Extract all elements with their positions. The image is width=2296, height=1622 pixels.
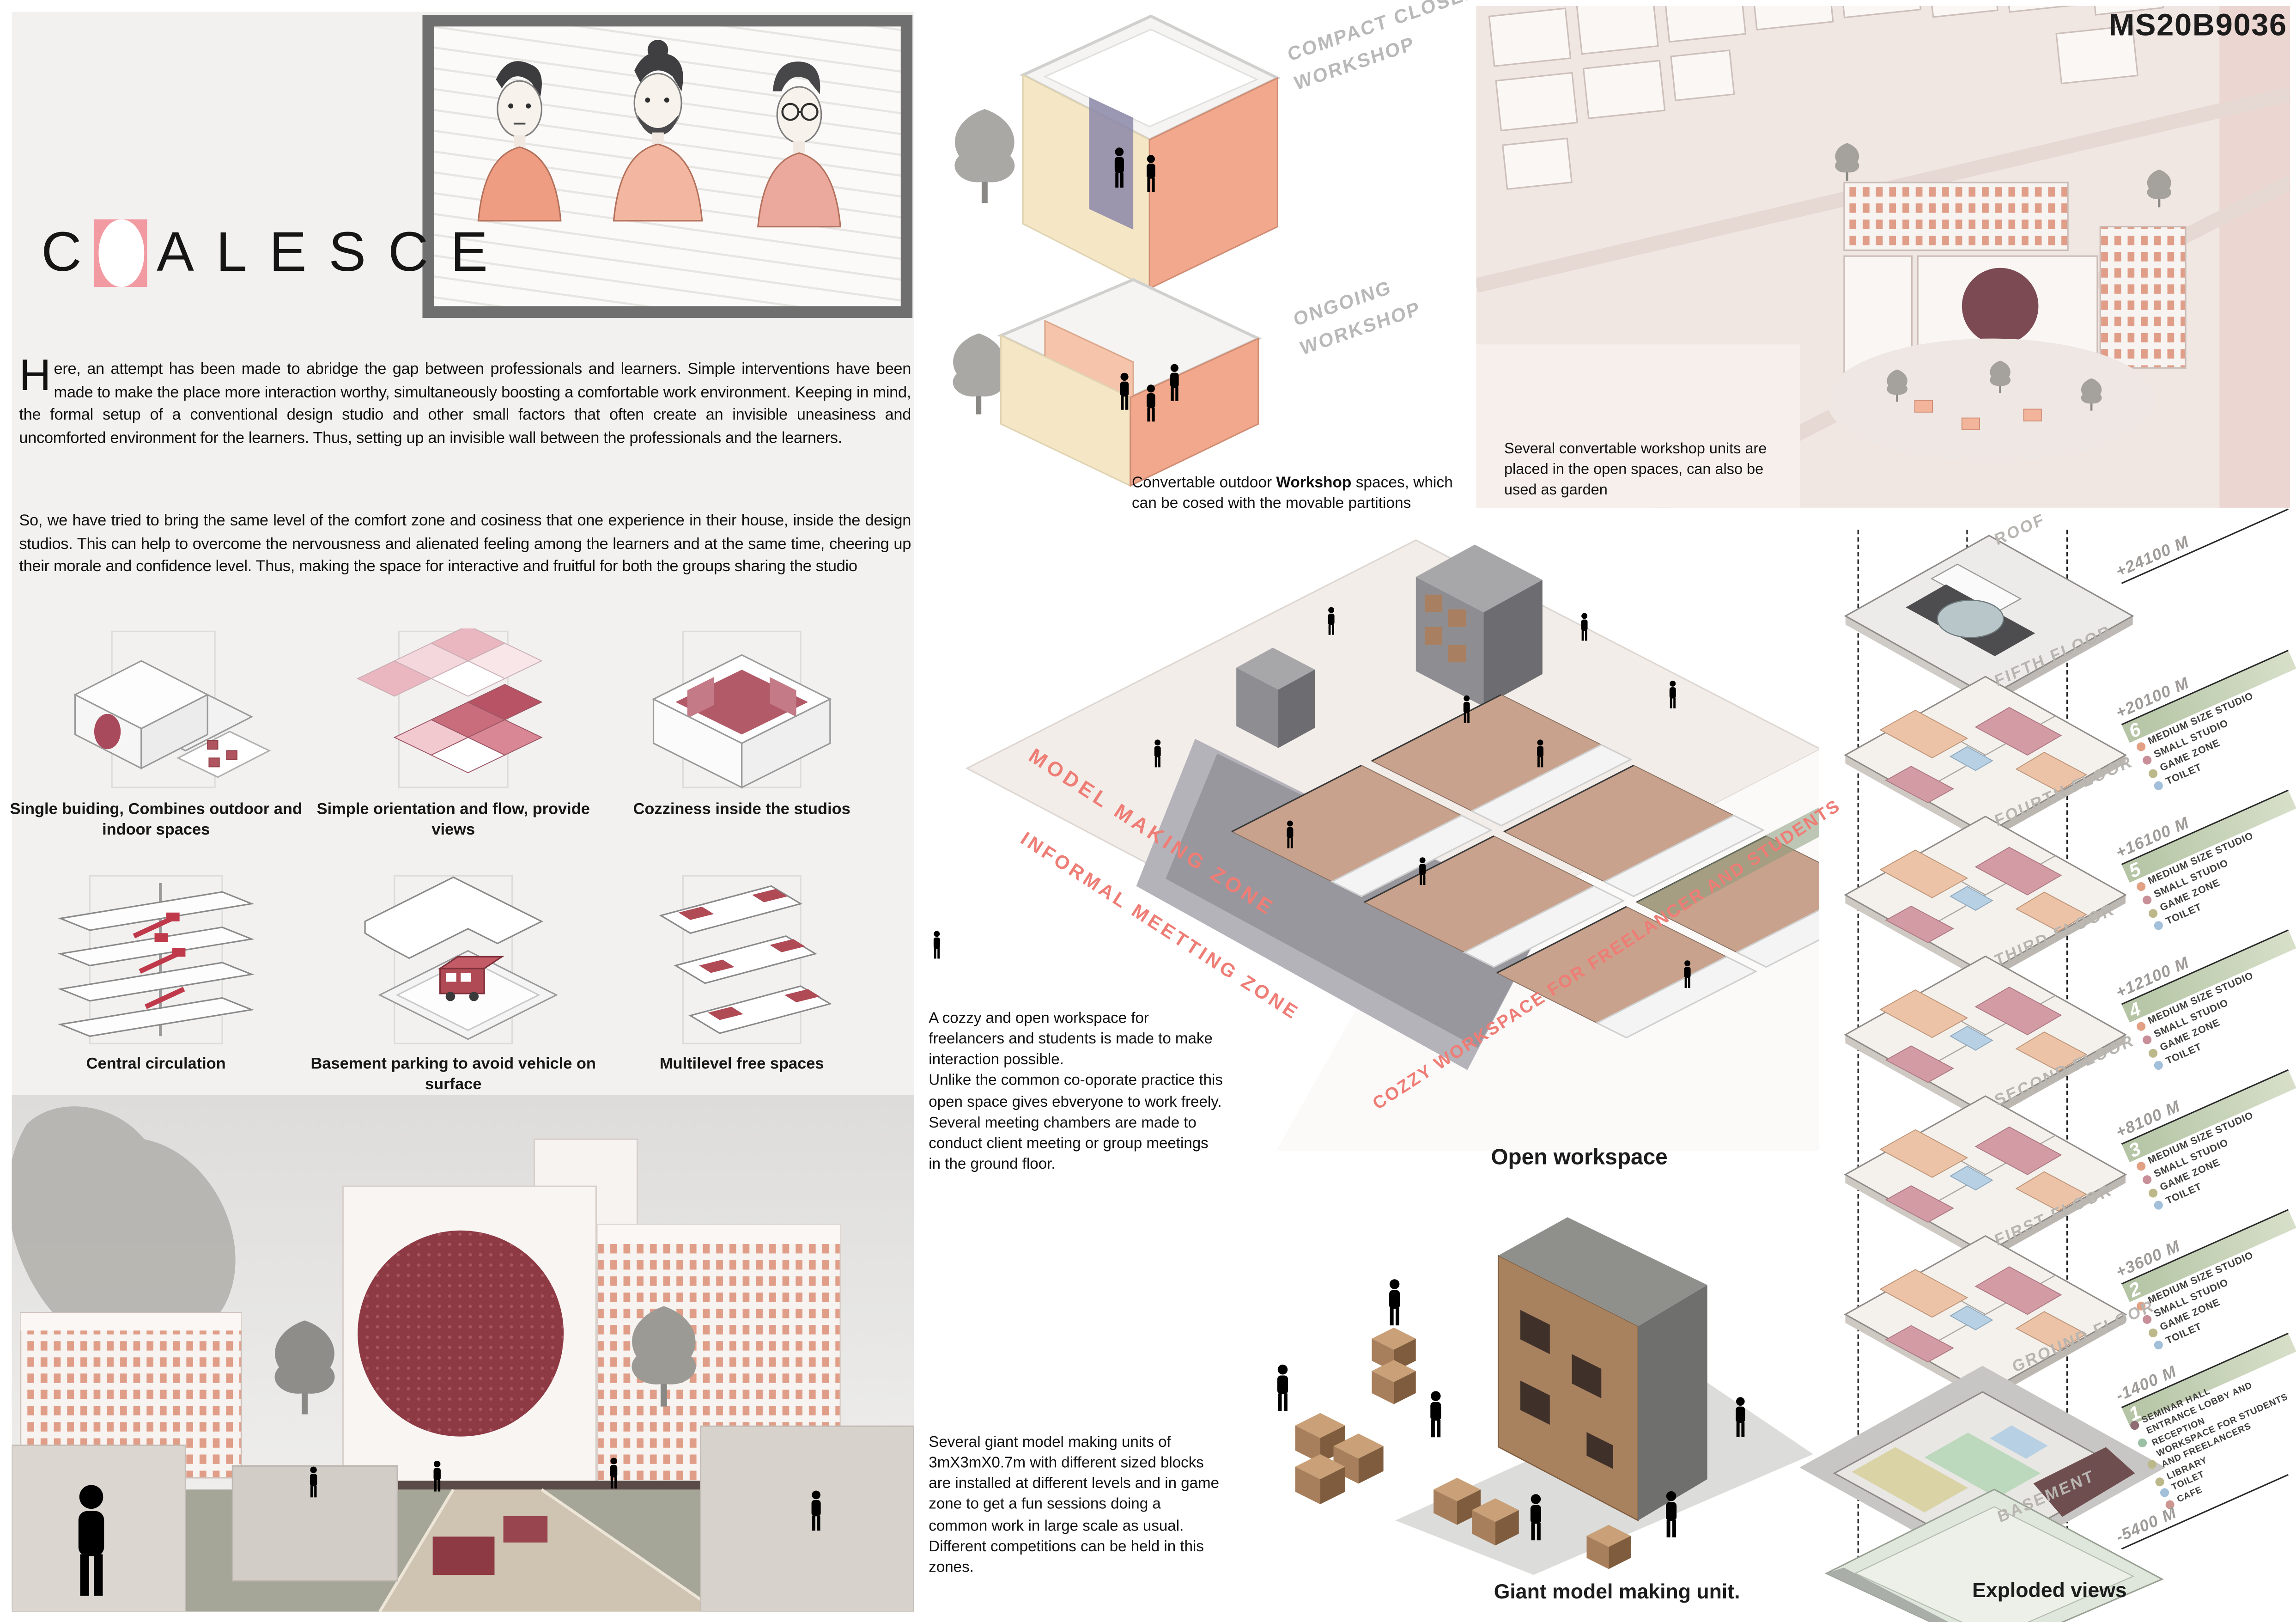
- workshop-label-closed: COMPACT CLOSED WORKSHOP: [1285, 0, 1493, 98]
- diagram-caption: Cozziness inside the studios: [595, 799, 889, 820]
- diagram-orientation-flow: Simple orientation and flow, provide vie…: [306, 628, 601, 841]
- workshop-caption: Convertable outdoor Workshop spaces, whi…: [1132, 472, 1467, 514]
- closed-workshop-unit-illustration: [942, 9, 1288, 303]
- diagram-single-building: Single buiding, Combines outdoor and ind…: [9, 628, 303, 841]
- diagram-caption: Basement parking to avoid vehicle on sur…: [306, 1054, 601, 1095]
- diagram-caption: Central circulation: [9, 1054, 303, 1075]
- site-caption: Several convertable workshop units are p…: [1504, 440, 1778, 501]
- open-workspace-caption: A cozzy and open workspace for freelance…: [929, 1010, 1223, 1176]
- open-workshop-unit-illustration: [942, 277, 1273, 498]
- drop-cap: H: [19, 359, 51, 394]
- presentation-board: C ALESCE Here, an attempt has been made …: [0, 0, 2296, 1622]
- intro-paragraph-2: So, we have tried to bring the same leve…: [19, 511, 911, 580]
- diagram-central-circulation: Central circulation: [9, 874, 303, 1074]
- diagram-cozziness: Cozziness inside the studios: [595, 628, 889, 820]
- logo-letter-c: C: [41, 221, 103, 285]
- workshop-label-ongoing: ONGOING WORKSHOP: [1291, 239, 1499, 362]
- diagram-multilevel-spaces: Multilevel free spaces: [595, 874, 889, 1074]
- giant-model-unit-illustration: [1219, 1175, 1819, 1575]
- courtyard-render-illustration: [12, 1095, 914, 1612]
- diagram-basement-parking: Basement parking to avoid vehicle on sur…: [306, 874, 601, 1095]
- giant-model-title: Giant model making unit.: [1494, 1579, 1740, 1603]
- giant-model-caption: Several giant model making units of 3mX3…: [929, 1433, 1220, 1579]
- logo-o-mark: [95, 220, 148, 287]
- aerial-site-render-illustration: [1476, 6, 2290, 508]
- diagram-caption: Multilevel free spaces: [595, 1054, 889, 1075]
- board-canvas: C ALESCE Here, an attempt has been made …: [0, 0, 2296, 1622]
- diagram-caption: Single buiding, Combines outdoor and ind…: [9, 799, 303, 841]
- open-workspace-title: Open workspace: [1491, 1145, 1667, 1170]
- intro-paragraph-1-text: ere, an attempt has been made to abridge…: [19, 360, 911, 448]
- exploded-views-title: Exploded views: [1972, 1578, 2127, 1601]
- diagram-caption: Simple orientation and flow, provide vie…: [306, 799, 601, 841]
- intro-paragraph-1: Here, an attempt has been made to abridg…: [19, 359, 911, 452]
- board-code: MS20B9036: [2109, 9, 2287, 44]
- logo-rest: ALESCE: [157, 221, 510, 285]
- coalesce-logo: C ALESCE: [41, 215, 510, 292]
